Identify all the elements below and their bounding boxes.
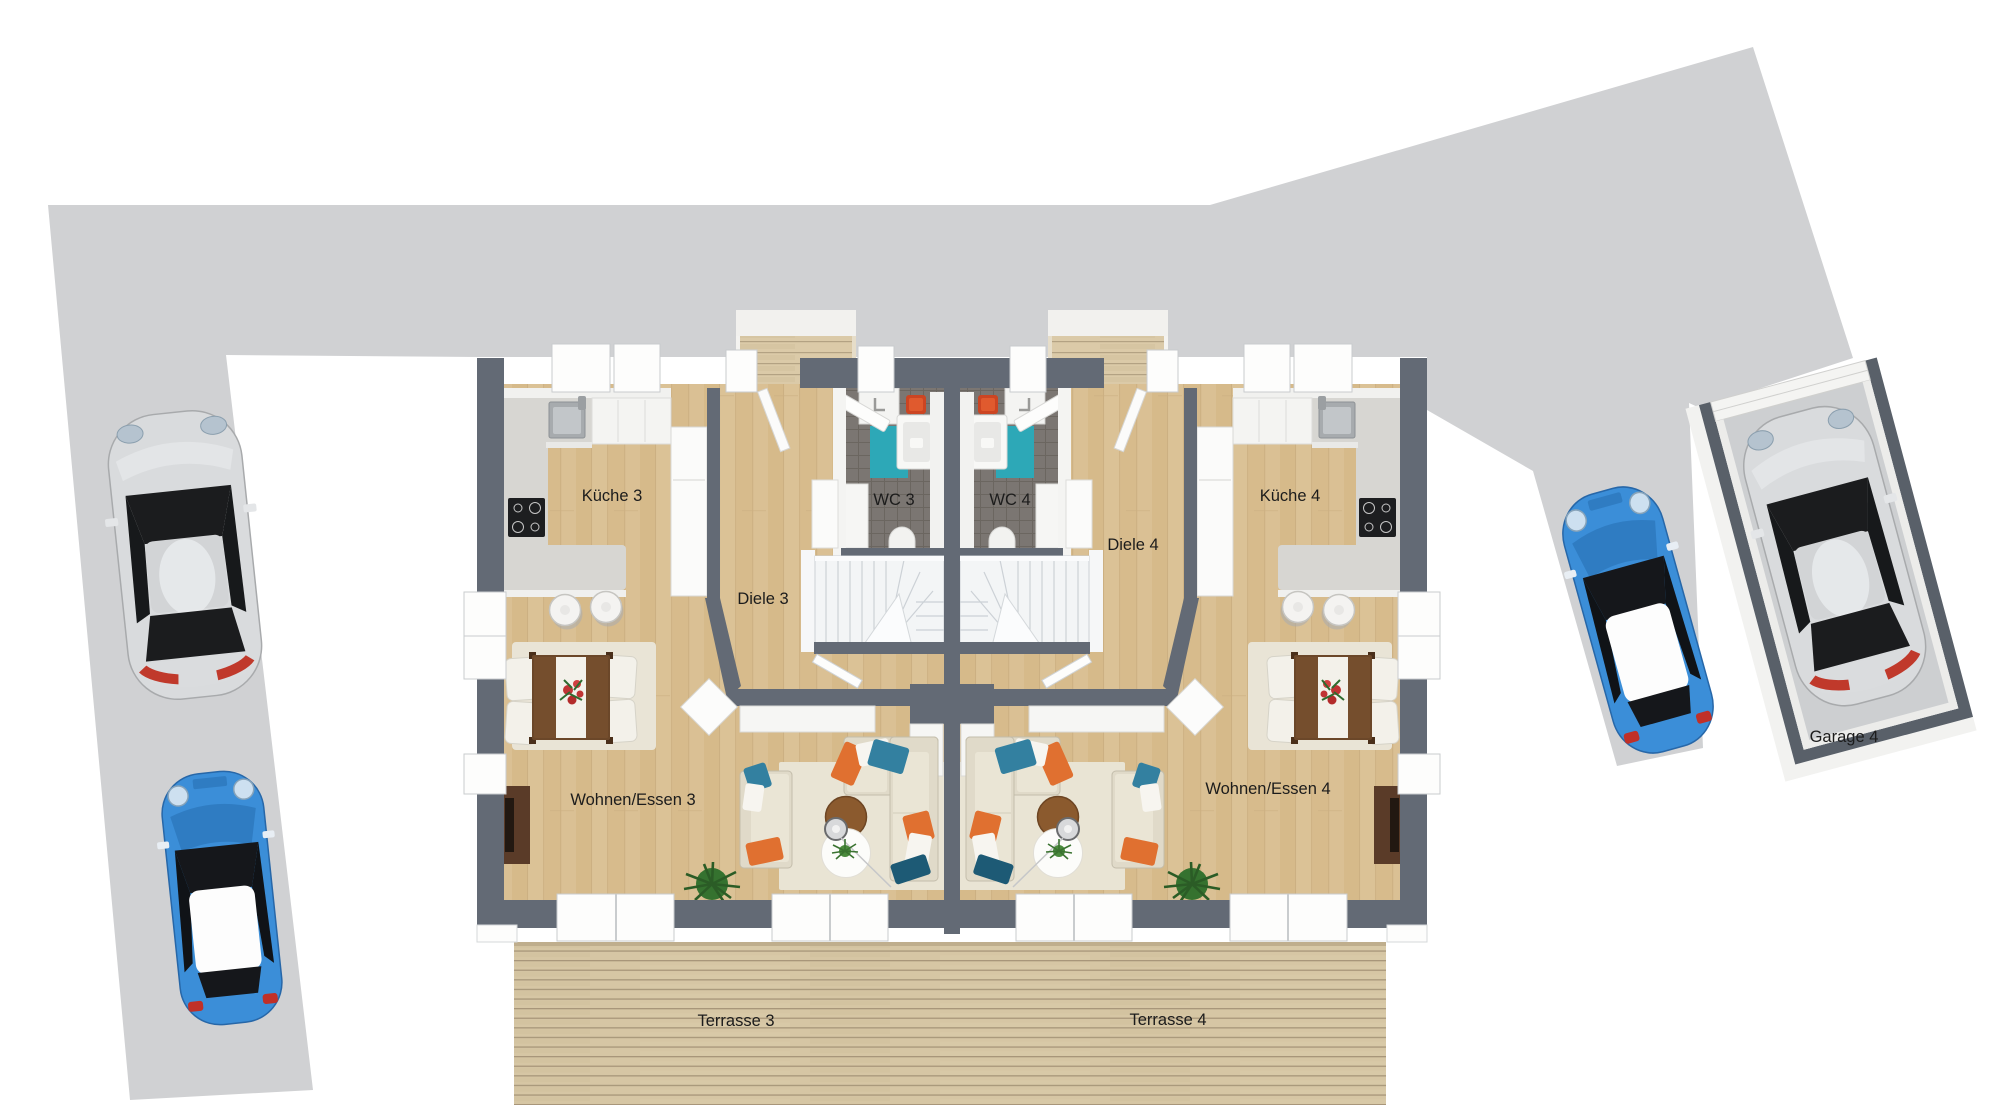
svg-text:WC 4: WC 4 — [989, 491, 1030, 509]
svg-text:Wohnen/Essen 3: Wohnen/Essen 3 — [570, 791, 695, 809]
svg-text:Terrasse 4: Terrasse 4 — [1129, 1011, 1206, 1029]
svg-text:Küche 4: Küche 4 — [1260, 487, 1321, 505]
svg-text:WC 3: WC 3 — [873, 491, 914, 509]
svg-text:Diele 4: Diele 4 — [1107, 536, 1158, 554]
svg-text:Garage 4: Garage 4 — [1810, 728, 1879, 746]
svg-text:Diele 3: Diele 3 — [737, 590, 788, 608]
svg-text:Küche 3: Küche 3 — [582, 487, 643, 505]
svg-text:Wohnen/Essen 4: Wohnen/Essen 4 — [1205, 780, 1330, 798]
svg-text:Terrasse 3: Terrasse 3 — [697, 1012, 774, 1030]
